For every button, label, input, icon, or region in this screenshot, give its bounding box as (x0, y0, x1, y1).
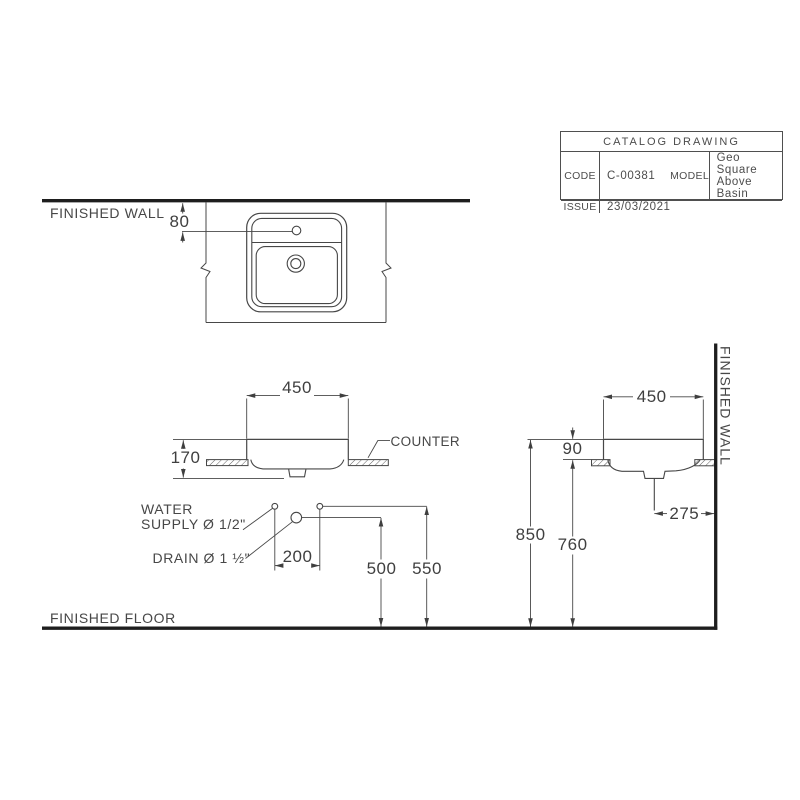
dim-275: 275 (669, 504, 699, 524)
dim-90: 90 (563, 439, 583, 459)
faucet-hole (292, 226, 301, 235)
water-supply-label-line1: WATER (141, 502, 246, 517)
finished-wall-right-label: FINISHED WALL (718, 346, 734, 466)
basin-side-body (604, 439, 704, 459)
title-block-title: CATALOG DRAWING (561, 132, 782, 152)
side-view-linework (528, 344, 716, 630)
counter-section-right (348, 460, 388, 466)
title-block: CATALOG DRAWING CODE C-00381 MODEL Geo S… (560, 131, 783, 200)
code-label: CODE (561, 152, 600, 200)
drain-tail-front (289, 469, 306, 477)
title-block-row-model: MODEL Geo Square Above Basin (671, 152, 782, 201)
water-supply-point-left (272, 503, 278, 509)
code-value: C-00381 (600, 152, 671, 200)
dim-200: 200 (283, 547, 313, 567)
counter-leader (368, 441, 390, 458)
counter-section-left (207, 460, 249, 466)
bowl-side (608, 460, 700, 479)
dim-450-side: 450 (637, 387, 667, 407)
supply-leader (243, 509, 272, 530)
counter-section-side-left (592, 460, 611, 466)
drain-label: DRAIN Ø 1 ½" (153, 550, 251, 566)
counter-edge-right (382, 202, 391, 322)
issue-label: ISSUE (561, 201, 600, 213)
dim-550: 550 (412, 559, 442, 579)
issue-value: 23/03/2021 (600, 201, 671, 213)
water-supply-label: WATER SUPPLY Ø 1/2" (141, 502, 246, 531)
model-value: Geo Square Above Basin (710, 152, 782, 200)
catalog-drawing-canvas: CATALOG DRAWING CODE C-00381 MODEL Geo S… (0, 0, 800, 800)
drain-hole-inner (291, 259, 301, 269)
water-supply-point-right (317, 503, 323, 509)
dim-80-lines (182, 203, 292, 242)
finished-floor-label: FINISHED FLOOR (50, 610, 176, 626)
drain-point (291, 512, 302, 523)
basin-outer-rim (247, 213, 347, 311)
drawing-linework (0, 0, 800, 800)
dim-760: 760 (558, 535, 588, 555)
basin-front-body (247, 439, 349, 459)
dim-170: 170 (171, 448, 201, 468)
dim-450-front-lines (247, 396, 349, 439)
water-supply-label-line2: SUPPLY Ø 1/2" (141, 517, 246, 532)
dim-850: 850 (516, 525, 546, 545)
counter-label: COUNTER (391, 434, 461, 449)
model-label: MODEL (671, 152, 710, 200)
title-block-row-code: CODE C-00381 (561, 152, 671, 201)
dim-80: 80 (170, 212, 190, 232)
finished-wall-top-label: FINISHED WALL (50, 205, 165, 221)
counter-edge-left (201, 202, 210, 322)
title-block-row-issue: ISSUE 23/03/2021 (561, 201, 671, 213)
dim-450-front: 450 (282, 378, 312, 398)
bowl-front (251, 460, 344, 469)
dim-500: 500 (367, 559, 397, 579)
drain-hole-outer (287, 255, 304, 272)
